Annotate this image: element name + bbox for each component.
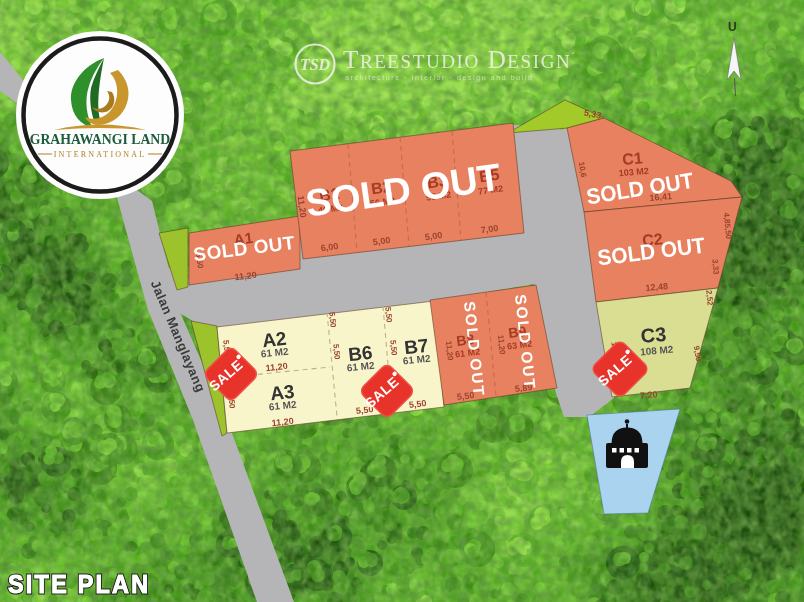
svg-text:TREESTUDIO DESIGN´: TREESTUDIO DESIGN´ — [343, 46, 576, 73]
svg-text:U: U — [728, 20, 737, 34]
svg-text:INTERNATIONAL: INTERNATIONAL — [54, 150, 147, 159]
svg-text:2,52: 2,52 — [704, 290, 714, 307]
svg-text:7,20: 7,20 — [640, 389, 658, 400]
svg-text:12,48: 12,48 — [645, 281, 668, 293]
svg-text:5,50: 5,50 — [331, 344, 342, 361]
svg-text:C1: C1 — [622, 149, 644, 168]
svg-text:TSD: TSD — [300, 56, 331, 73]
svg-text:5,50: 5,50 — [327, 312, 338, 329]
svg-text:5,50: 5,50 — [408, 398, 426, 410]
svg-text:3,33: 3,33 — [710, 259, 720, 276]
svg-text:5,50: 5,50 — [388, 340, 399, 357]
svg-text:GRAHAWANGI LAND: GRAHAWANGI LAND — [30, 130, 171, 147]
svg-text:SITE PLAN: SITE PLAN — [8, 570, 150, 598]
svg-text:architecture · interior · desi: architecture · interior · design and bui… — [345, 74, 534, 82]
svg-text:5,50: 5,50 — [383, 307, 394, 324]
